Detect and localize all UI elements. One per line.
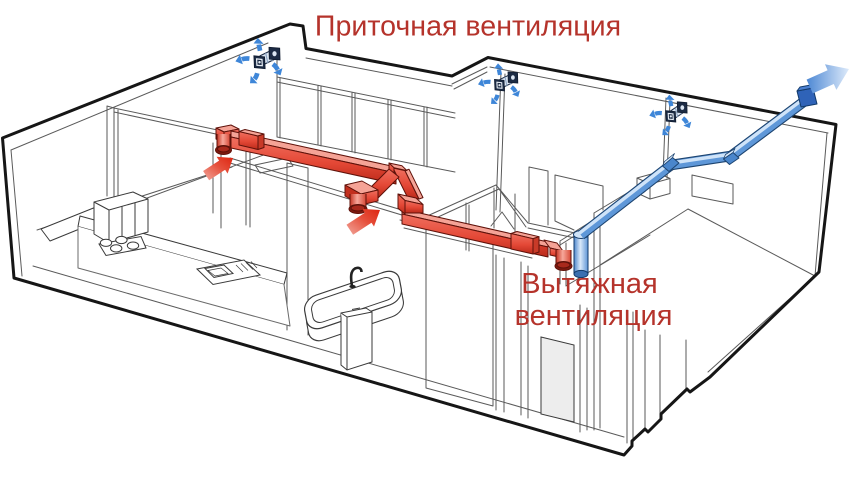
svg-text:Приточная вентиляция: Приточная вентиляция xyxy=(315,11,621,43)
svg-text:Вытяжная: Вытяжная xyxy=(521,268,657,300)
svg-text:вентиляция: вентиляция xyxy=(515,300,673,332)
